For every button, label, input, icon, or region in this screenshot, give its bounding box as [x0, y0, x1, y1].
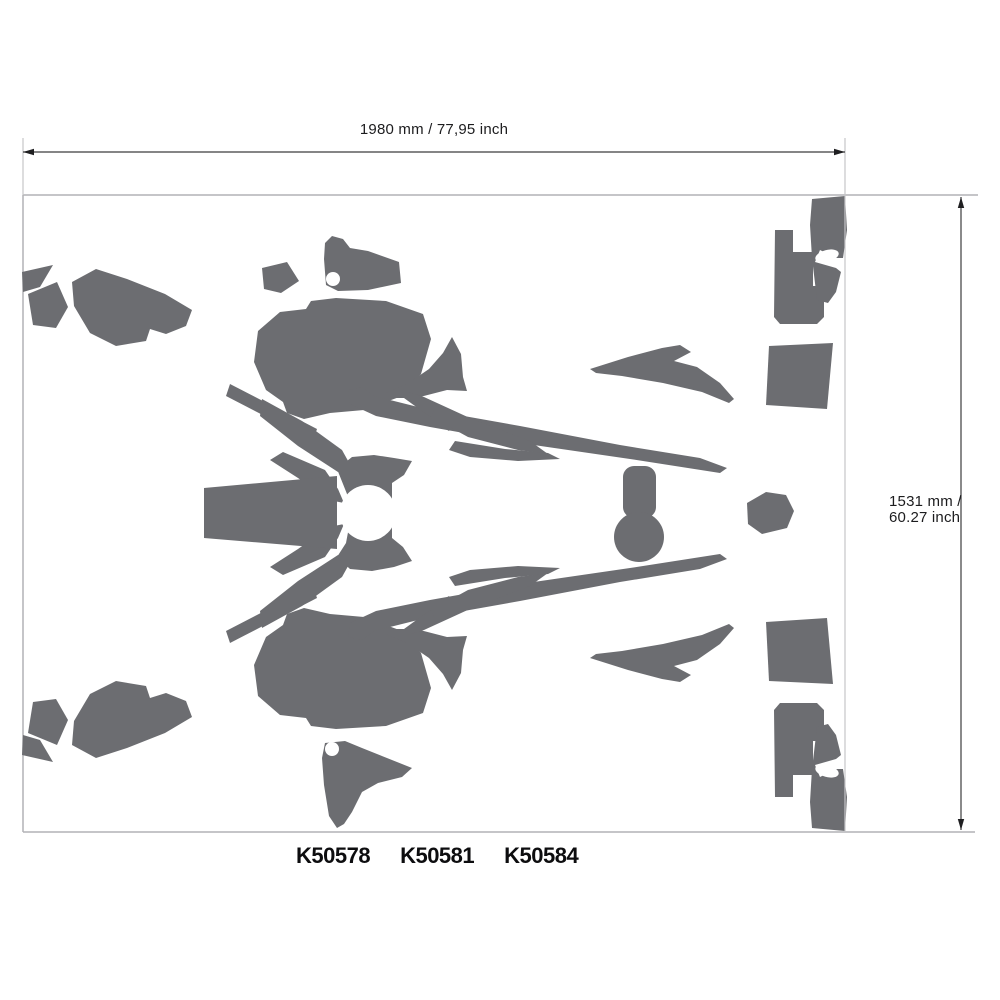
left-fender-mirror [72, 681, 192, 758]
tri-hole-bottom-hole [325, 742, 339, 756]
corner-sliver [810, 196, 847, 303]
keyhole-ball [614, 512, 664, 562]
headlight-circle [340, 485, 396, 541]
wavy-blade [590, 345, 734, 403]
tri-hole-top-hole [326, 272, 340, 286]
dimension-arrowhead [958, 819, 964, 830]
long-blade-mirror [348, 554, 727, 640]
dimension-arrowhead [834, 149, 845, 155]
height-dimension-label: 1531 mm / 60.27 inch [889, 494, 962, 526]
right-trap [766, 343, 833, 409]
width-dimension-label: 1980 mm / 77,95 inch [23, 121, 845, 138]
right-trap-mirror [766, 618, 833, 684]
left-quad [28, 282, 68, 328]
keyhole-stem [623, 466, 656, 518]
height-dimension-line2: 60.27 inch [889, 510, 962, 526]
shroud-blob [254, 298, 431, 419]
part-number-1: K50578 [296, 843, 370, 869]
dimension-arrowhead [23, 149, 34, 155]
front-fender [204, 476, 337, 549]
dimension-arrowhead [958, 197, 964, 208]
wavy-blade-mirror [590, 624, 734, 682]
mid-quad [262, 262, 299, 293]
decal-template-page: 1980 mm / 77,95 inch 1531 mm / 60.27 inc… [0, 0, 1000, 1000]
pentagon [747, 492, 794, 534]
shroud-blob-mirror [254, 608, 431, 729]
height-dimension-line1: 1531 mm / [889, 494, 962, 510]
corner-sliver-mirror [810, 724, 847, 831]
left-quad-mirror [28, 699, 68, 745]
part-number-row: K50578 K50581 K50584 [296, 843, 578, 869]
part-number-3: K50584 [504, 843, 578, 869]
left-fender [72, 269, 192, 346]
part-number-2: K50581 [400, 843, 474, 869]
